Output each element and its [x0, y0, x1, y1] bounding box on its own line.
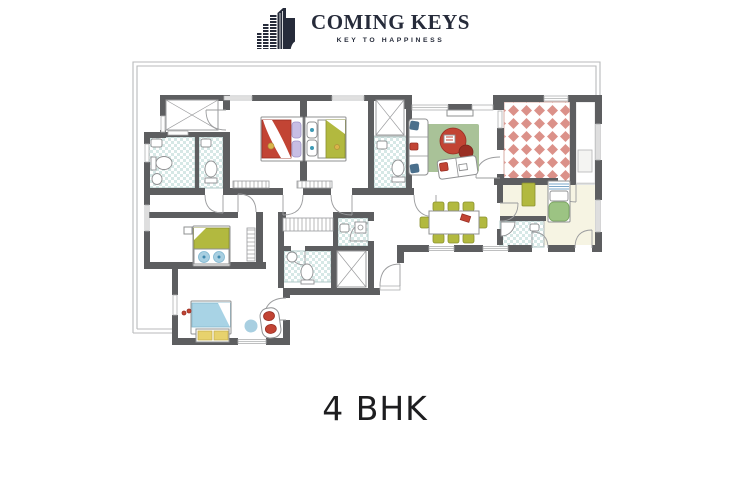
- radiator-bedroom2: [297, 181, 332, 188]
- bedroom1-bed: [261, 117, 303, 161]
- living-room-sofa: [409, 119, 428, 175]
- radiator-bedroom1: [233, 181, 269, 188]
- living-room-tv-console: [447, 110, 473, 116]
- wardrobe-x-closet-3: [337, 251, 366, 287]
- maid-room-bed: [548, 181, 570, 222]
- bedroom3-bed: [184, 226, 230, 266]
- bedroom2-bed: [305, 117, 346, 161]
- dining-table: [429, 211, 479, 234]
- dresser-bedroom3: [247, 228, 255, 261]
- bedroom4-armchair: [259, 307, 282, 339]
- shaft-unit: [578, 150, 592, 172]
- bedroom4-bed: [182, 301, 231, 342]
- wardrobe-x-closet-2: [376, 100, 404, 135]
- corridor-wardrobe: [283, 218, 333, 231]
- wardrobe-x-closet-1: [166, 100, 218, 130]
- terrace-tiled-floor: [504, 102, 570, 182]
- plan-title: 4 BHK: [0, 389, 750, 428]
- dining-set: [420, 202, 487, 243]
- maid-room-cabinet: [522, 183, 535, 206]
- bedroom4-round-rug: [245, 320, 258, 333]
